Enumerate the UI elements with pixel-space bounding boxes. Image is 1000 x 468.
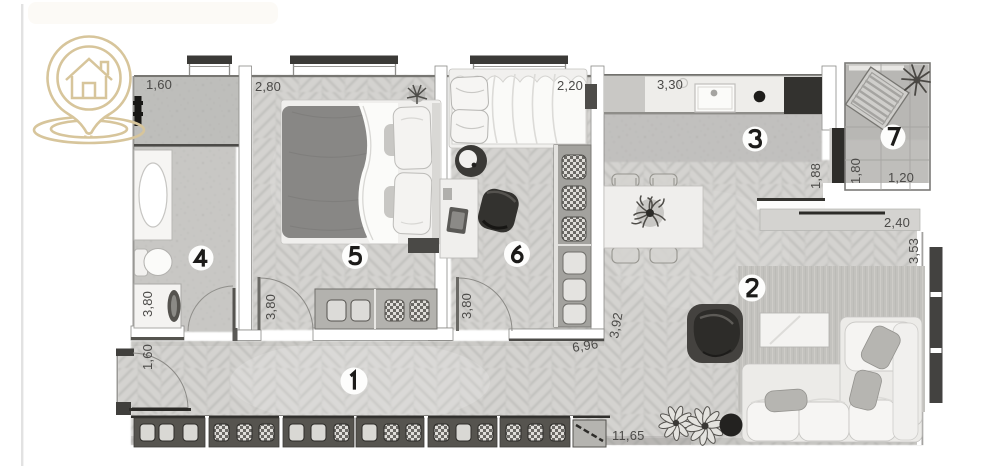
svg-text:1,60: 1,60: [146, 77, 172, 92]
svg-text:1,80: 1,80: [848, 158, 863, 184]
svg-text:3,53: 3,53: [906, 238, 921, 264]
svg-text:11,65: 11,65: [612, 428, 645, 443]
svg-text:1,20: 1,20: [888, 170, 914, 185]
svg-text:3,30: 3,30: [657, 77, 683, 92]
svg-text:3,80: 3,80: [459, 293, 474, 319]
svg-text:2,40: 2,40: [884, 215, 910, 230]
svg-text:3,80: 3,80: [140, 291, 155, 317]
svg-text:1,60: 1,60: [140, 344, 155, 370]
svg-text:2,20: 2,20: [557, 78, 583, 93]
svg-text:2,80: 2,80: [255, 79, 281, 94]
svg-text:3,80: 3,80: [263, 294, 278, 320]
svg-text:1,88: 1,88: [808, 163, 823, 189]
